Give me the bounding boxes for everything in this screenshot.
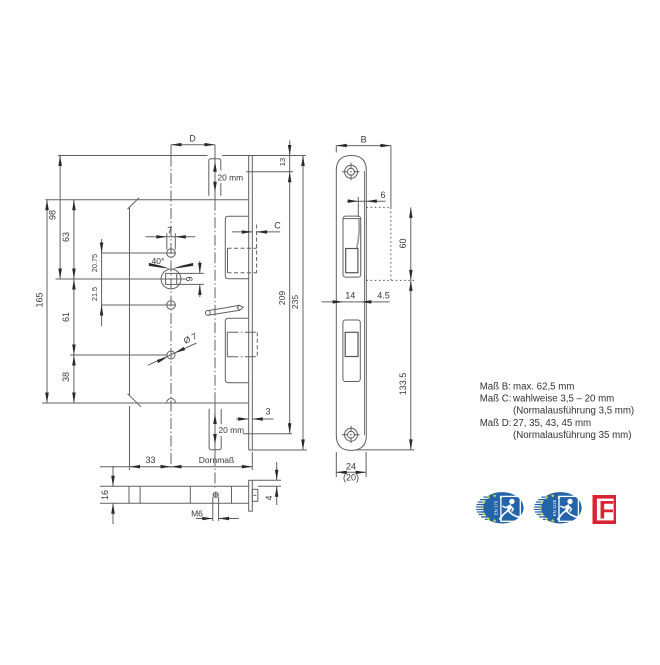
svg-text:21.5: 21.5 <box>90 287 99 301</box>
svg-text:3: 3 <box>265 407 270 417</box>
svg-text:EN 179: EN 179 <box>494 500 499 515</box>
svg-text:60: 60 <box>398 238 408 248</box>
svg-text:27, 35, 43, 45 mm: 27, 35, 43, 45 mm <box>513 418 591 429</box>
svg-text:133.5: 133.5 <box>398 373 408 396</box>
svg-text:Dornmaß: Dornmaß <box>199 455 234 465</box>
svg-text:(Normalausführung 3,5 mm): (Normalausführung 3,5 mm) <box>513 406 634 417</box>
svg-text:7: 7 <box>167 225 172 235</box>
svg-text:38: 38 <box>61 372 71 382</box>
svg-text:F: F <box>599 496 614 524</box>
svg-text:63: 63 <box>61 232 71 242</box>
svg-text:20 mm: 20 mm <box>219 425 245 435</box>
svg-text:B: B <box>361 134 367 144</box>
svg-text:wahlweise 3,5 – 20 mm: wahlweise 3,5 – 20 mm <box>512 394 614 405</box>
svg-text:13: 13 <box>278 158 287 166</box>
svg-text:209: 209 <box>277 291 287 305</box>
svg-text:20.75: 20.75 <box>90 254 99 272</box>
svg-text:61: 61 <box>61 312 71 322</box>
svg-text:Maß B:: Maß B: <box>480 382 511 393</box>
svg-text:M6: M6 <box>191 509 203 519</box>
svg-text:4: 4 <box>264 495 274 500</box>
svg-text:max. 62,5 mm: max. 62,5 mm <box>513 382 574 393</box>
svg-text:4.5: 4.5 <box>377 290 390 300</box>
svg-text:20 mm: 20 mm <box>218 172 244 182</box>
svg-text:Maß D:: Maß D: <box>480 418 512 429</box>
svg-text:(20): (20) <box>343 473 359 483</box>
svg-text:24: 24 <box>346 461 356 471</box>
svg-text:16: 16 <box>100 490 110 500</box>
svg-text:14: 14 <box>345 290 355 300</box>
svg-text:98: 98 <box>47 210 57 220</box>
svg-text:6: 6 <box>380 190 385 200</box>
svg-text:235: 235 <box>290 295 300 309</box>
svg-text:165: 165 <box>34 292 44 307</box>
svg-text:33: 33 <box>145 455 155 465</box>
svg-text:Maß C:: Maß C: <box>480 394 512 405</box>
svg-text:D: D <box>189 134 196 144</box>
svg-text:(Normalausführung 35 mm): (Normalausführung 35 mm) <box>513 430 631 441</box>
svg-text:C: C <box>274 221 281 231</box>
svg-text:EN 1125: EN 1125 <box>552 499 557 516</box>
